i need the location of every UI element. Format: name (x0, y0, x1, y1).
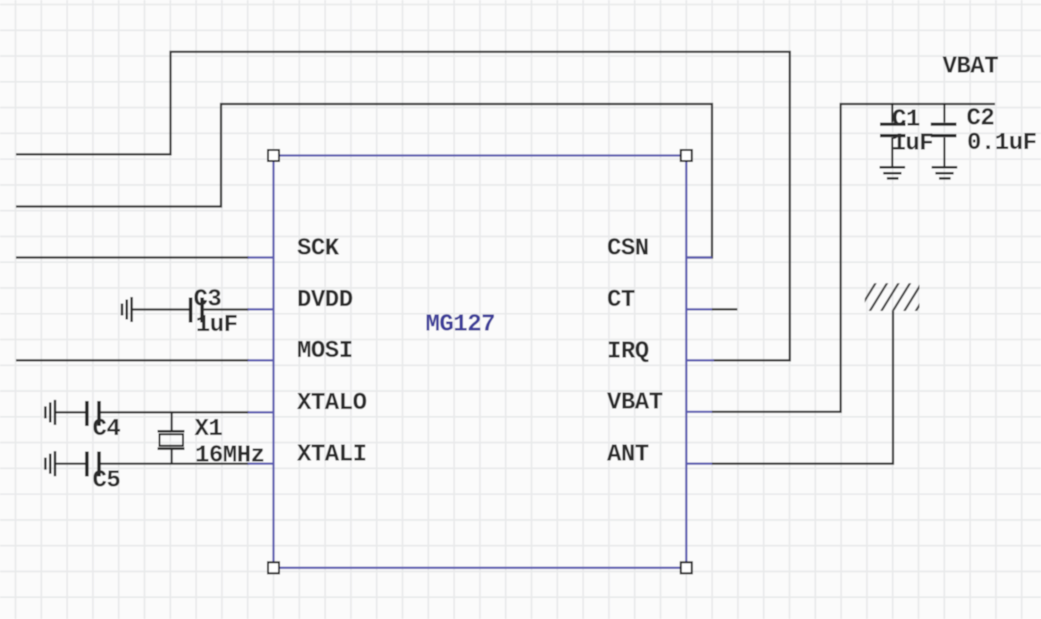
svg-text:0.1uF: 0.1uF (967, 130, 1037, 157)
svg-text:C5: C5 (93, 467, 121, 494)
svg-text:MG127: MG127 (426, 312, 496, 339)
svg-text:DVDD: DVDD (297, 287, 353, 314)
svg-text:ANT: ANT (607, 441, 649, 468)
svg-text:C2: C2 (967, 106, 995, 133)
svg-text:C4: C4 (93, 416, 121, 443)
svg-text:C3: C3 (194, 287, 222, 314)
svg-text:MOSI: MOSI (297, 338, 353, 365)
svg-text:XTALO: XTALO (297, 390, 367, 417)
svg-text:IRQ: IRQ (607, 338, 649, 365)
svg-text:XTALI: XTALI (297, 441, 367, 468)
svg-text:16MHz: 16MHz (195, 443, 265, 470)
svg-text:X1: X1 (195, 416, 223, 443)
svg-text:VBAT: VBAT (607, 390, 663, 417)
svg-text:C1: C1 (892, 106, 920, 133)
svg-text:1uF: 1uF (892, 131, 934, 158)
svg-text:CT: CT (607, 287, 635, 314)
svg-text:VBAT: VBAT (943, 54, 999, 81)
svg-text:CSN: CSN (607, 235, 649, 262)
svg-text:1uF: 1uF (196, 312, 238, 339)
svg-text:SCK: SCK (297, 235, 340, 262)
